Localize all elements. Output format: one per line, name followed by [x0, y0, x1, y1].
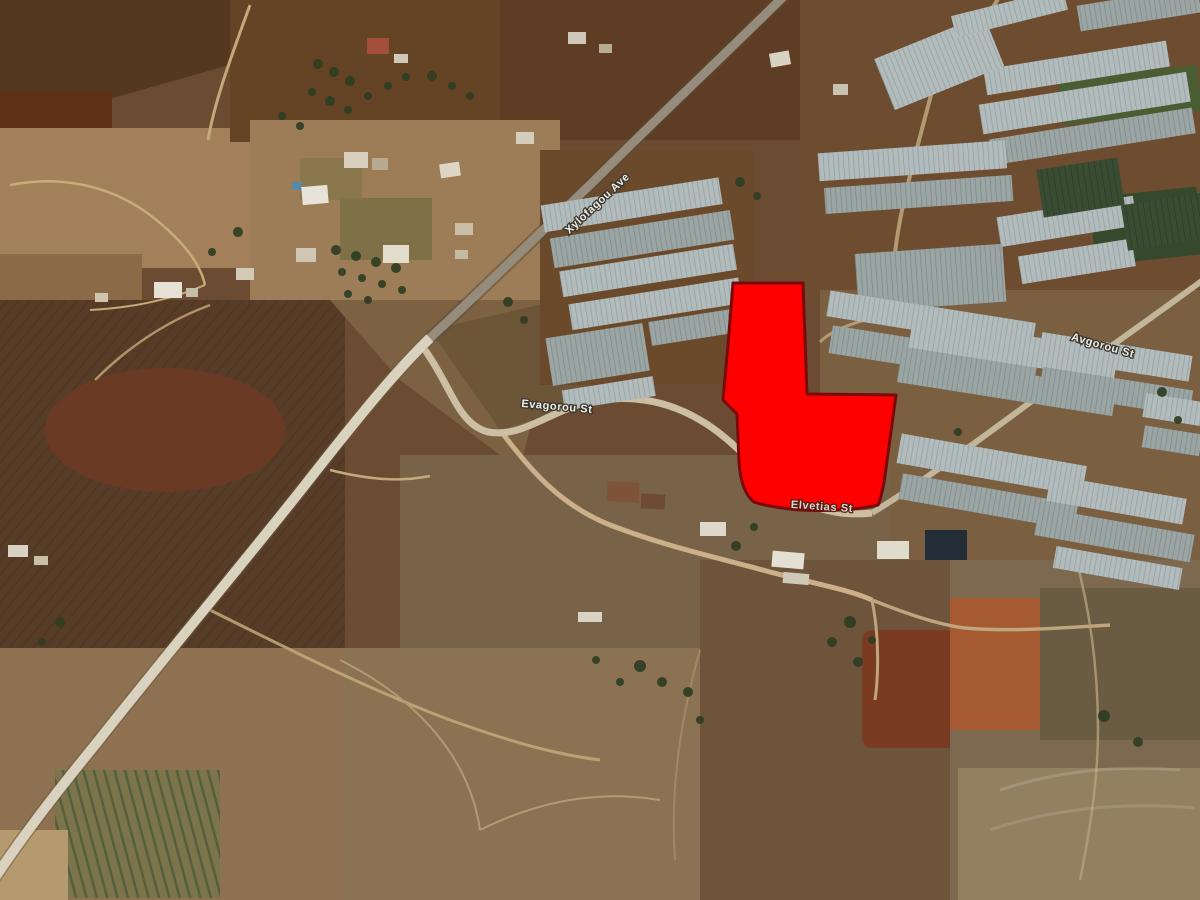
building [455, 223, 473, 235]
field [330, 648, 705, 900]
building [296, 248, 316, 262]
reservoir-pond [925, 530, 967, 560]
barn [641, 493, 666, 509]
building [95, 293, 108, 302]
building [516, 132, 534, 144]
field [0, 128, 262, 268]
building [568, 32, 586, 44]
pool [292, 182, 302, 190]
building [833, 84, 848, 95]
satellite-map[interactable]: Xylofagou Ave Evagorou St Elvetias St Av… [0, 0, 1200, 900]
map-viewport[interactable]: Xylofagou Ave Evagorou St Elvetias St Av… [0, 0, 1200, 900]
building [154, 282, 182, 298]
field-red-soil [45, 368, 285, 492]
barn [606, 481, 639, 503]
building [186, 288, 198, 297]
building [301, 185, 328, 205]
barn [877, 541, 909, 559]
barn [771, 551, 804, 570]
building [34, 556, 48, 565]
field-orange [950, 598, 1042, 730]
building [344, 152, 368, 168]
building [8, 545, 28, 557]
building [455, 250, 468, 259]
building-red-roof [367, 38, 389, 54]
barn [783, 572, 810, 585]
building [236, 268, 254, 280]
field [1040, 588, 1200, 740]
building [383, 245, 409, 263]
building [599, 44, 612, 53]
field [958, 768, 1200, 900]
building [439, 162, 461, 179]
building [394, 54, 408, 63]
building [372, 158, 388, 170]
barn [700, 522, 726, 536]
shed [578, 612, 602, 622]
crop-rows [55, 770, 220, 898]
